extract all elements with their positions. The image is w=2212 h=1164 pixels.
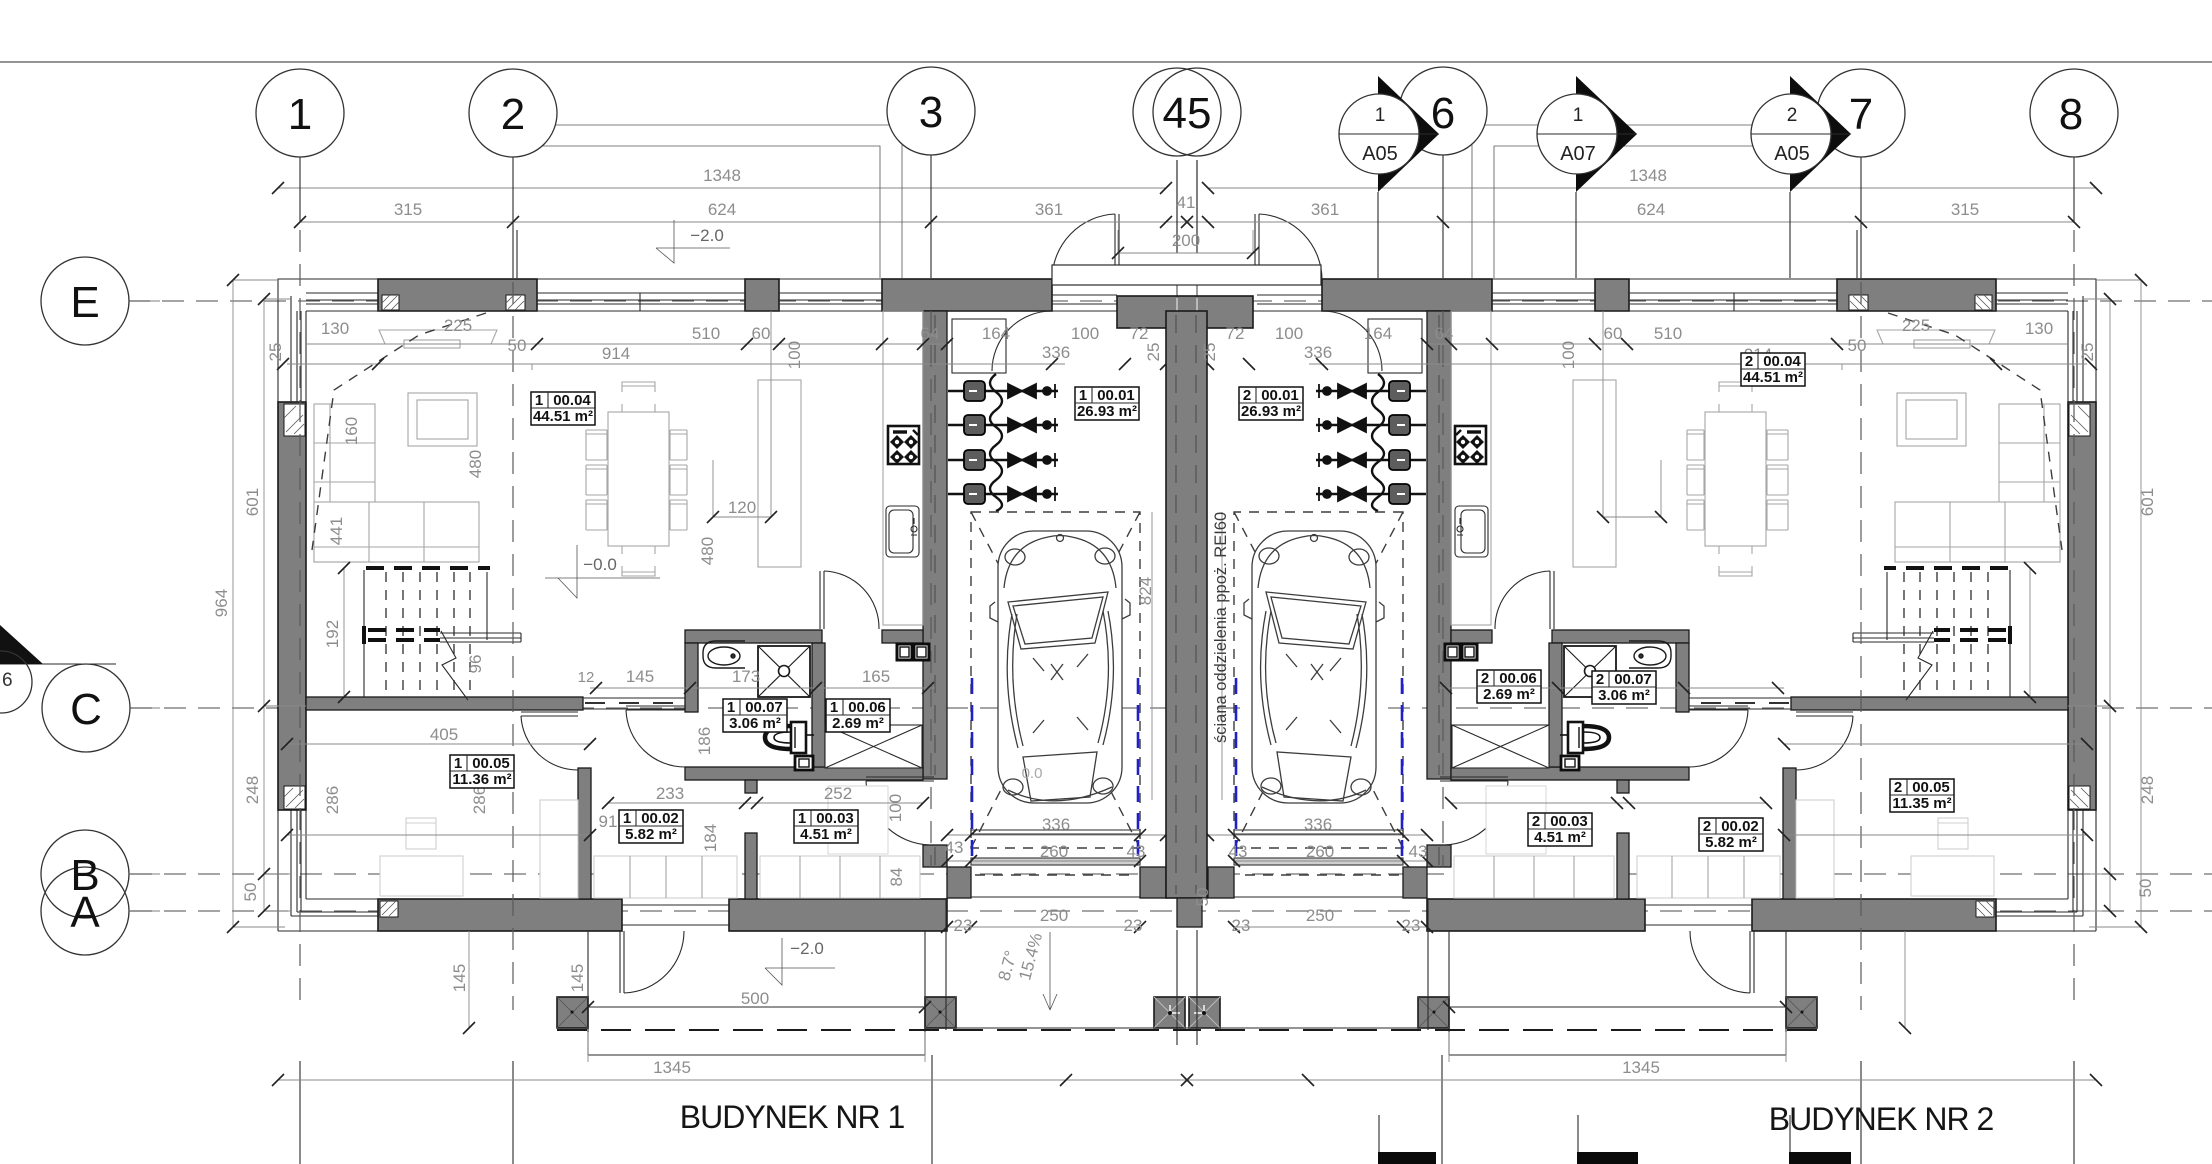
- svg-text:286: 286: [323, 786, 342, 814]
- svg-text:1: 1: [1573, 105, 1584, 126]
- svg-text:405: 405: [430, 725, 458, 744]
- svg-text:BUDYNEK NR 2: BUDYNEK NR 2: [1769, 1101, 1994, 1137]
- svg-text:480: 480: [466, 450, 485, 478]
- svg-text:1: 1: [727, 699, 735, 716]
- svg-text:2.69 m²: 2.69 m²: [832, 715, 884, 732]
- svg-text:00.03: 00.03: [816, 810, 854, 827]
- svg-text:120: 120: [728, 498, 756, 517]
- svg-text:2: 2: [1243, 387, 1251, 404]
- svg-text:1348: 1348: [1629, 166, 1667, 185]
- svg-text:252: 252: [824, 784, 852, 803]
- svg-text:145: 145: [450, 964, 469, 992]
- svg-text:−2.0: −2.0: [690, 226, 724, 245]
- svg-text:165: 165: [862, 667, 890, 686]
- svg-text:00.06: 00.06: [848, 699, 886, 716]
- svg-text:C: C: [70, 685, 102, 734]
- svg-text:50: 50: [1848, 336, 1867, 355]
- svg-text:100: 100: [1275, 324, 1303, 343]
- svg-text:250: 250: [1306, 906, 1334, 925]
- svg-text:336: 336: [1042, 343, 1070, 362]
- svg-text:23: 23: [954, 916, 973, 935]
- svg-text:00.02: 00.02: [641, 810, 679, 827]
- svg-text:624: 624: [708, 200, 736, 219]
- svg-text:164: 164: [982, 324, 1010, 343]
- svg-text:824: 824: [1136, 577, 1155, 605]
- svg-text:361: 361: [1311, 200, 1339, 219]
- svg-text:−0.0: −0.0: [583, 555, 617, 574]
- svg-text:510: 510: [1654, 324, 1682, 343]
- svg-text:1: 1: [1375, 105, 1386, 126]
- svg-text:A: A: [70, 888, 100, 937]
- svg-text:E: E: [70, 278, 99, 327]
- svg-text:ściana oddzielenia ppoż. REI60: ściana oddzielenia ppoż. REI60: [1212, 512, 1230, 743]
- svg-text:26.93 m²: 26.93 m²: [1077, 403, 1137, 420]
- svg-text:50: 50: [508, 336, 527, 355]
- svg-text:260: 260: [1306, 842, 1334, 861]
- svg-text:50: 50: [1193, 888, 1212, 907]
- svg-text:1: 1: [535, 392, 543, 409]
- svg-text:336: 336: [1304, 815, 1332, 834]
- svg-text:25: 25: [2078, 343, 2097, 362]
- svg-text:145: 145: [626, 667, 654, 686]
- svg-text:2: 2: [1703, 818, 1711, 835]
- svg-text:3: 3: [919, 88, 943, 137]
- svg-text:11.35 m²: 11.35 m²: [1892, 795, 1951, 812]
- svg-text:130: 130: [2025, 319, 2053, 338]
- svg-text:60: 60: [1604, 324, 1623, 343]
- svg-text:200: 200: [1172, 231, 1200, 250]
- svg-text:315: 315: [1951, 200, 1979, 219]
- svg-text:64: 64: [1435, 324, 1454, 343]
- svg-text:43: 43: [1127, 842, 1146, 861]
- svg-text:23: 23: [1232, 916, 1251, 935]
- svg-text:8: 8: [2059, 90, 2083, 139]
- svg-text:00.04: 00.04: [1763, 353, 1801, 370]
- svg-text:64: 64: [921, 324, 940, 343]
- svg-text:72: 72: [1226, 324, 1245, 343]
- svg-text:100: 100: [1071, 324, 1099, 343]
- svg-text:3.06 m²: 3.06 m²: [1598, 687, 1650, 704]
- svg-text:130: 130: [321, 319, 349, 338]
- svg-text:510: 510: [692, 324, 720, 343]
- svg-text:250: 250: [1040, 906, 1068, 925]
- svg-text:173: 173: [732, 667, 760, 686]
- svg-text:A05: A05: [1774, 143, 1810, 165]
- svg-text:00.03: 00.03: [1550, 813, 1588, 830]
- svg-text:00.07: 00.07: [745, 699, 783, 716]
- svg-text:1: 1: [454, 755, 462, 772]
- svg-text:1345: 1345: [653, 1058, 691, 1077]
- svg-text:00.01: 00.01: [1097, 387, 1135, 404]
- svg-text:2: 2: [1481, 670, 1489, 687]
- svg-text:1: 1: [830, 699, 838, 716]
- svg-text:361: 361: [1035, 200, 1063, 219]
- svg-text:60: 60: [752, 324, 771, 343]
- svg-text:500: 500: [741, 989, 769, 1008]
- svg-text:0.0: 0.0: [1022, 765, 1043, 782]
- svg-text:225: 225: [444, 316, 472, 335]
- svg-text:4.51 m²: 4.51 m²: [1534, 829, 1586, 846]
- svg-text:00.02: 00.02: [1721, 818, 1759, 835]
- svg-text:50: 50: [2136, 879, 2155, 898]
- svg-text:2: 2: [1745, 353, 1753, 370]
- svg-text:−2.0: −2.0: [790, 939, 824, 958]
- svg-text:4.51 m²: 4.51 m²: [800, 826, 852, 843]
- svg-text:1: 1: [798, 810, 806, 827]
- svg-text:100: 100: [886, 794, 905, 822]
- svg-text:192: 192: [323, 620, 342, 648]
- svg-text:601: 601: [2138, 488, 2157, 516]
- svg-text:601: 601: [243, 488, 262, 516]
- svg-text:5.82 m²: 5.82 m²: [1705, 834, 1757, 851]
- svg-text:50: 50: [241, 883, 260, 902]
- svg-text:315: 315: [394, 200, 422, 219]
- svg-text:1: 1: [623, 810, 631, 827]
- svg-text:43: 43: [1409, 842, 1428, 861]
- svg-text:25: 25: [1200, 343, 1219, 362]
- svg-text:184: 184: [701, 824, 720, 852]
- svg-text:5.82 m²: 5.82 m²: [625, 826, 677, 843]
- svg-text:43: 43: [945, 838, 964, 857]
- svg-text:A05: A05: [1362, 143, 1398, 165]
- svg-text:286: 286: [470, 786, 489, 814]
- svg-text:A07: A07: [1560, 143, 1596, 165]
- svg-text:25: 25: [1144, 343, 1163, 362]
- svg-text:6: 6: [2, 670, 13, 691]
- svg-text:186: 186: [695, 727, 714, 755]
- svg-text:145: 145: [568, 964, 587, 992]
- svg-text:43: 43: [1229, 842, 1248, 861]
- svg-text:BUDYNEK NR 1: BUDYNEK NR 1: [680, 1099, 905, 1135]
- svg-text:25: 25: [266, 343, 285, 362]
- svg-text:2: 2: [1787, 105, 1798, 126]
- svg-text:84: 84: [887, 868, 906, 887]
- svg-text:336: 336: [1304, 343, 1332, 362]
- svg-text:96: 96: [466, 655, 485, 674]
- svg-text:44.51 m²: 44.51 m²: [533, 408, 593, 425]
- svg-text:160: 160: [342, 417, 361, 445]
- svg-text:00.05: 00.05: [1912, 779, 1950, 796]
- svg-text:2: 2: [1532, 813, 1540, 830]
- svg-text:44.51 m²: 44.51 m²: [1743, 369, 1803, 386]
- svg-text:3.06 m²: 3.06 m²: [729, 715, 781, 732]
- svg-text:6: 6: [1431, 89, 1455, 138]
- svg-text:41: 41: [1177, 193, 1196, 212]
- svg-text:00.04: 00.04: [553, 392, 591, 409]
- svg-text:964: 964: [212, 589, 231, 617]
- svg-text:7: 7: [1849, 90, 1873, 139]
- svg-text:164: 164: [1364, 324, 1392, 343]
- svg-text:1: 1: [1079, 387, 1087, 404]
- svg-text:2.69 m²: 2.69 m²: [1483, 686, 1535, 703]
- svg-text:1345: 1345: [1622, 1058, 1660, 1077]
- svg-text:248: 248: [243, 776, 262, 804]
- svg-text:00.07: 00.07: [1614, 671, 1652, 688]
- svg-text:00.01: 00.01: [1261, 387, 1299, 404]
- svg-text:100: 100: [785, 341, 804, 369]
- svg-text:336: 336: [1042, 815, 1070, 834]
- svg-text:00.06: 00.06: [1499, 670, 1537, 687]
- svg-text:480: 480: [698, 537, 717, 565]
- svg-text:45: 45: [1163, 89, 1212, 138]
- svg-text:624: 624: [1637, 200, 1665, 219]
- svg-text:914: 914: [602, 344, 630, 363]
- svg-text:1: 1: [288, 90, 312, 139]
- svg-text:233: 233: [656, 784, 684, 803]
- svg-text:11.36 m²: 11.36 m²: [452, 771, 511, 788]
- svg-text:26.93 m²: 26.93 m²: [1241, 403, 1301, 420]
- svg-text:225: 225: [1902, 316, 1930, 335]
- svg-text:441: 441: [327, 517, 346, 545]
- svg-text:72: 72: [1130, 324, 1149, 343]
- svg-text:1348: 1348: [703, 166, 741, 185]
- svg-text:260: 260: [1040, 842, 1068, 861]
- svg-text:2: 2: [1596, 671, 1604, 688]
- svg-text:248: 248: [2138, 776, 2157, 804]
- svg-text:23: 23: [1402, 916, 1421, 935]
- svg-text:00.05: 00.05: [472, 755, 510, 772]
- svg-text:2: 2: [501, 90, 525, 139]
- svg-text:2: 2: [1894, 779, 1902, 796]
- svg-text:100: 100: [1559, 341, 1578, 369]
- svg-text:12: 12: [578, 669, 595, 686]
- svg-text:91: 91: [599, 812, 618, 831]
- svg-text:23: 23: [1124, 916, 1143, 935]
